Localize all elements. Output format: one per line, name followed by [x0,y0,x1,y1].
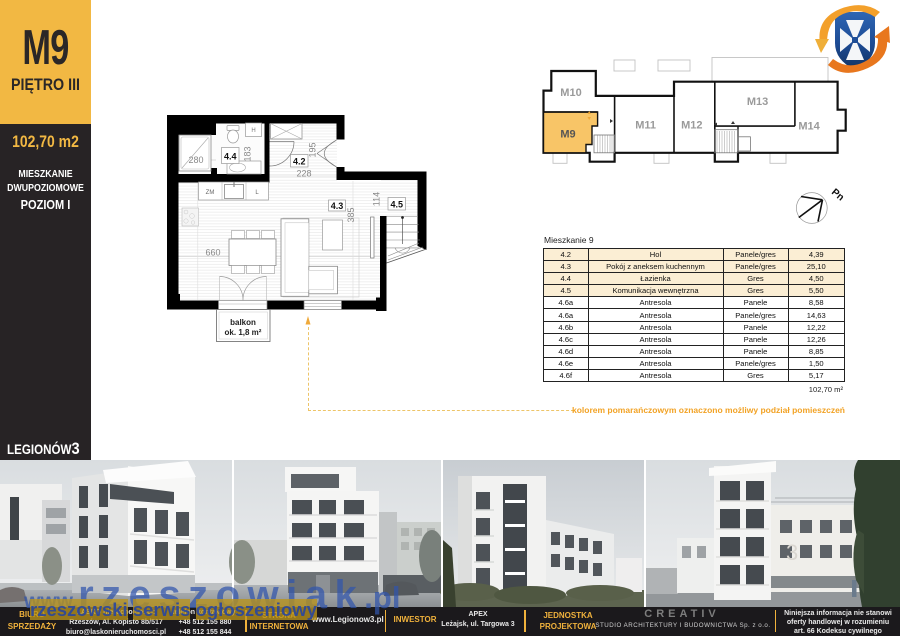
svg-text:H: H [251,128,255,134]
svg-text:balkon: balkon [230,318,256,327]
svg-text:195: 195 [308,142,318,157]
svg-text:4.3: 4.3 [331,201,344,211]
svg-text:4.5: 4.5 [390,200,403,210]
svg-text:M14: M14 [798,121,820,133]
svg-text:ok. 1,8 m²: ok. 1,8 m² [225,328,262,337]
svg-text:M10: M10 [560,87,581,99]
svg-text:4.4: 4.4 [224,152,237,162]
svg-text:385: 385 [346,207,356,222]
svg-text:M12: M12 [681,120,702,132]
svg-text:4.2: 4.2 [293,157,306,167]
svg-text:M9: M9 [560,129,575,141]
svg-text:280: 280 [188,155,203,165]
svg-text:228: 228 [296,169,311,179]
svg-text:660: 660 [205,248,220,258]
svg-text:Pn: Pn [829,187,846,204]
svg-text:M13: M13 [747,96,768,108]
svg-text:M11: M11 [635,120,656,132]
svg-text:183: 183 [243,146,253,161]
svg-text:3: 3 [786,540,798,565]
svg-text:114: 114 [372,192,382,206]
svg-text:ZM: ZM [206,190,215,196]
